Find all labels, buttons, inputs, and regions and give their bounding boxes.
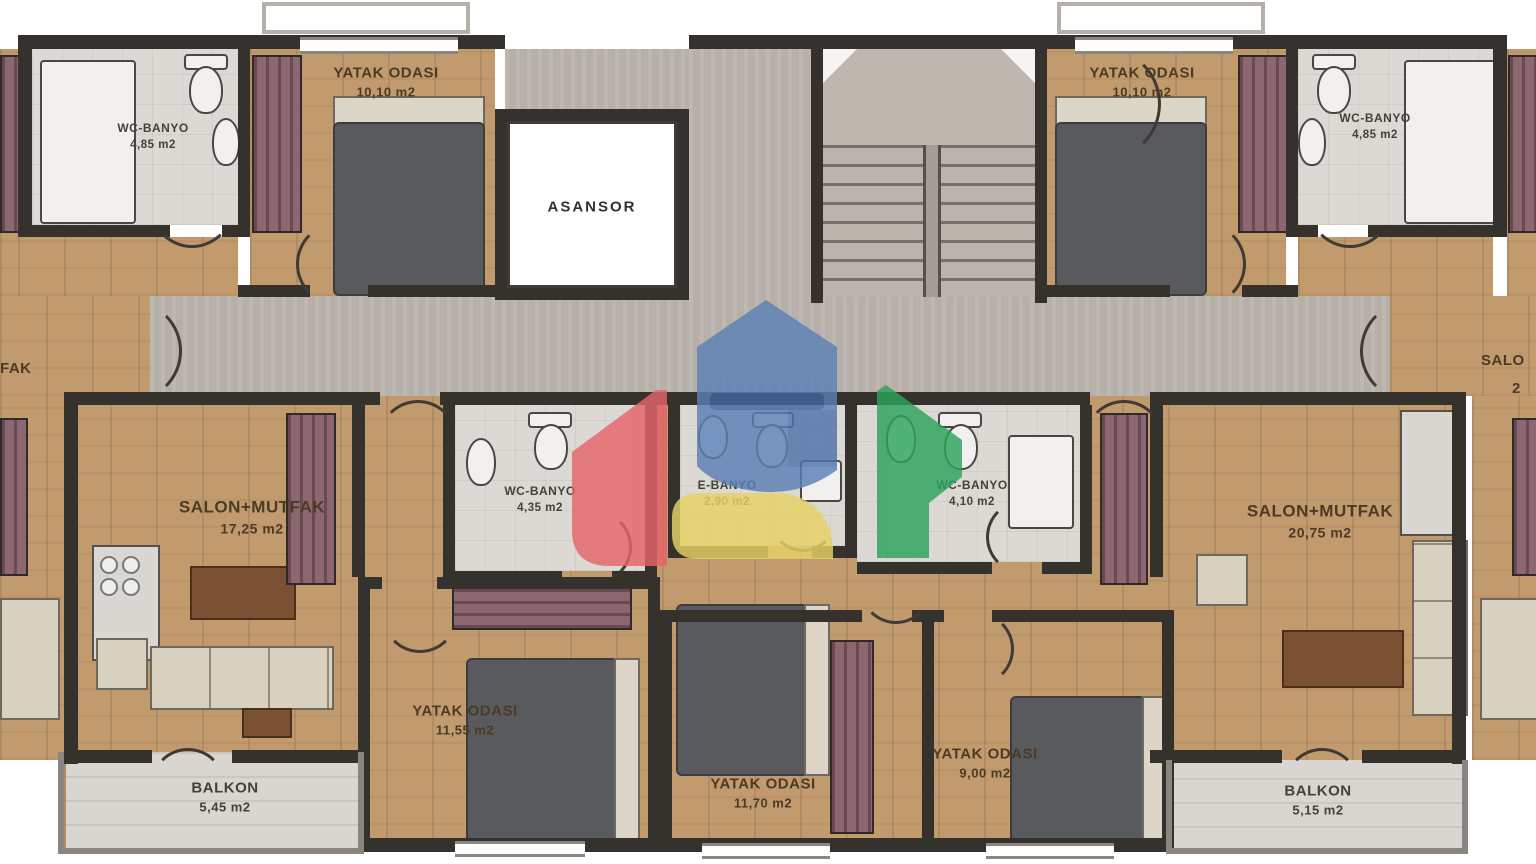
room-label-wc-banyo-top-left: WC-BANYO 4,85 m2 bbox=[117, 121, 188, 153]
wall bbox=[1035, 35, 1047, 303]
room-name: YATAK ODASI bbox=[333, 63, 438, 83]
balcony-rail bbox=[358, 752, 364, 852]
wall bbox=[238, 49, 250, 237]
wall bbox=[1042, 562, 1092, 574]
wall bbox=[1452, 392, 1466, 764]
room-label-bedroom-bottom-right: YATAK ODASI 9,00 m2 bbox=[932, 744, 1037, 781]
room-area: 20,75 m2 bbox=[1247, 523, 1393, 541]
room-label-bedroom-top-right: YATAK ODASI 10,10 m2 bbox=[1089, 63, 1194, 100]
room-label-wc-banyo-mid-right: WC-BANYO 4,10 m2 bbox=[936, 478, 1007, 510]
room-label-fragment-left: FAK bbox=[0, 360, 32, 377]
room-area: 4,10 m2 bbox=[936, 495, 1007, 510]
stairs-flight-left bbox=[823, 145, 923, 297]
room-name: ASANSOR bbox=[547, 197, 636, 217]
room-area: 10,10 m2 bbox=[333, 84, 438, 101]
armchair bbox=[1196, 554, 1248, 606]
wall bbox=[1368, 225, 1493, 237]
room-area: 5,15 m2 bbox=[1284, 802, 1351, 819]
wall bbox=[992, 610, 1174, 622]
door-arc bbox=[1162, 222, 1246, 306]
room-name: YATAK ODASI bbox=[1089, 63, 1194, 83]
floor-hall-band bbox=[150, 296, 1390, 396]
balcony-rail bbox=[58, 848, 364, 854]
toilet bbox=[756, 424, 788, 468]
room-label-bedroom-bottom-center: YATAK ODASI 11,70 m2 bbox=[710, 774, 815, 811]
room-area: 10,10 m2 bbox=[1089, 84, 1194, 101]
coffee-table bbox=[242, 708, 292, 738]
toilet bbox=[944, 424, 978, 470]
wardrobe bbox=[830, 640, 874, 834]
shower bbox=[1404, 60, 1500, 224]
stove-burner bbox=[122, 556, 140, 574]
tv-unit bbox=[190, 566, 296, 620]
window bbox=[702, 843, 830, 859]
wall bbox=[1242, 285, 1298, 297]
armchair bbox=[96, 638, 148, 690]
wall bbox=[934, 610, 944, 622]
bed-headboard bbox=[614, 658, 640, 844]
door-arc bbox=[558, 510, 632, 584]
room-name: SALO bbox=[1481, 352, 1525, 369]
sink bbox=[212, 118, 240, 166]
wall bbox=[18, 35, 32, 237]
wardrobe bbox=[1508, 55, 1536, 233]
room-name: FAK bbox=[0, 360, 32, 377]
sink bbox=[1298, 118, 1326, 166]
sink bbox=[698, 415, 728, 459]
wall bbox=[668, 405, 680, 557]
room-name: BALKON bbox=[191, 778, 258, 798]
room-name: WC-BANYO bbox=[936, 478, 1007, 494]
stove-burner bbox=[122, 578, 140, 596]
room-label-balcony-right: BALKON 5,15 m2 bbox=[1284, 781, 1351, 818]
room-label-elevator: ASANSOR bbox=[547, 197, 636, 217]
wall bbox=[845, 405, 857, 557]
room-name: BALKON bbox=[1284, 781, 1351, 801]
door-arc bbox=[296, 222, 380, 306]
wardrobe bbox=[1238, 55, 1288, 233]
door-arc bbox=[860, 552, 932, 624]
window bbox=[300, 37, 458, 54]
room-area: 2 bbox=[1512, 380, 1521, 397]
door-arc bbox=[1360, 300, 1462, 402]
wall bbox=[352, 405, 365, 577]
sofa bbox=[0, 598, 60, 720]
wall bbox=[1362, 750, 1466, 763]
balcony-rail bbox=[1166, 848, 1468, 854]
bed-headboard bbox=[804, 604, 830, 776]
room-name: YATAK ODASI bbox=[412, 701, 517, 721]
wardrobe bbox=[452, 586, 632, 630]
balcony-rail bbox=[58, 752, 64, 852]
wall bbox=[1037, 285, 1170, 297]
wall bbox=[677, 109, 689, 300]
room-area: 11,70 m2 bbox=[710, 795, 815, 812]
wall bbox=[368, 285, 497, 297]
window bbox=[455, 841, 585, 857]
wardrobe bbox=[252, 55, 302, 233]
room-area: 4,85 m2 bbox=[117, 138, 188, 153]
wall bbox=[660, 610, 672, 850]
window bbox=[986, 843, 1114, 859]
room-name: YATAK ODASI bbox=[710, 774, 815, 794]
door-arc bbox=[1084, 400, 1164, 480]
door-arc bbox=[378, 400, 458, 480]
floor-hall-below-wc-right bbox=[1298, 237, 1493, 296]
stairs-flight-right bbox=[935, 145, 1035, 297]
wall bbox=[648, 577, 660, 850]
room-name: WC-BANYO bbox=[1339, 111, 1410, 127]
room-area: 2,90 m2 bbox=[698, 495, 757, 510]
balcony-rail bbox=[1166, 760, 1172, 852]
floor-lift-lobby bbox=[505, 49, 689, 109]
wall bbox=[645, 405, 657, 583]
wall bbox=[358, 577, 382, 589]
room-name: SALON+MUTFAK bbox=[1247, 500, 1393, 522]
room-area: 11,55 m2 bbox=[412, 722, 517, 739]
door-arc bbox=[1308, 164, 1392, 248]
tv-unit bbox=[1282, 630, 1404, 688]
door-arc bbox=[382, 577, 458, 653]
door-arc bbox=[150, 164, 234, 248]
room-label-balcony-left: BALKON 5,45 m2 bbox=[191, 778, 258, 815]
room-label-living-left: SALON+MUTFAK 17,25 m2 bbox=[179, 496, 325, 537]
wardrobe bbox=[0, 418, 28, 576]
room-name: YATAK ODASI bbox=[932, 744, 1037, 764]
wall bbox=[495, 109, 689, 121]
wall bbox=[238, 285, 310, 297]
stove-burner bbox=[100, 556, 118, 574]
room-area: 4,85 m2 bbox=[1339, 128, 1410, 143]
room-label-ensuite: E-BANYO 2,90 m2 bbox=[698, 478, 757, 510]
wall bbox=[1493, 35, 1507, 237]
stairs-stringer bbox=[923, 145, 941, 297]
toilet bbox=[534, 424, 568, 470]
wall bbox=[668, 546, 768, 558]
toilet bbox=[1317, 66, 1351, 114]
room-name: WC-BANYO bbox=[117, 121, 188, 137]
roof-overhang bbox=[1057, 2, 1265, 34]
stair-chamfer-right bbox=[1001, 49, 1035, 83]
room-label-bedroom-bottom-left: YATAK ODASI 11,55 m2 bbox=[412, 701, 517, 738]
sofa bbox=[1480, 598, 1536, 720]
room-name: E-BANYO bbox=[698, 478, 757, 494]
room-area: 4,35 m2 bbox=[504, 501, 575, 516]
wall bbox=[495, 288, 689, 300]
room-area: 17,25 m2 bbox=[179, 519, 325, 537]
bed bbox=[466, 658, 618, 844]
wall bbox=[689, 35, 1047, 49]
room-label-living-right: SALON+MUTFAK 20,75 m2 bbox=[1247, 500, 1393, 541]
wall bbox=[495, 109, 507, 300]
sink bbox=[466, 438, 496, 486]
roof-overhang bbox=[262, 2, 470, 34]
wall bbox=[440, 392, 1090, 405]
wall bbox=[232, 750, 364, 763]
wall bbox=[64, 750, 152, 763]
room-label-wc-banyo-top-right: WC-BANYO 4,85 m2 bbox=[1339, 111, 1410, 143]
wall bbox=[18, 225, 170, 237]
wall bbox=[437, 577, 660, 589]
room-label-bedroom-top-left: YATAK ODASI 10,10 m2 bbox=[333, 63, 438, 100]
floor-corridor-top bbox=[689, 49, 811, 296]
room-label-fragment-right: SALO bbox=[1481, 352, 1525, 369]
toilet bbox=[189, 66, 223, 114]
door-arc bbox=[986, 500, 1060, 574]
sink bbox=[886, 415, 916, 463]
wall bbox=[811, 35, 823, 303]
wardrobe bbox=[1512, 418, 1536, 576]
room-area: 5,45 m2 bbox=[191, 799, 258, 816]
bed bbox=[676, 604, 808, 776]
room-name: SALON+MUTFAK bbox=[179, 496, 325, 518]
wall bbox=[660, 610, 862, 622]
wall bbox=[1286, 49, 1298, 237]
balcony-rail bbox=[1462, 760, 1468, 852]
floorplan: WC-BANYO 4,85 m2 YATAK ODASI 10,10 m2 AS… bbox=[0, 0, 1536, 864]
stair-chamfer-left bbox=[823, 49, 857, 83]
sofa bbox=[150, 646, 334, 710]
wall bbox=[64, 392, 78, 764]
wall bbox=[922, 610, 934, 850]
room-name: WC-BANYO bbox=[504, 484, 575, 500]
stove-burner bbox=[100, 578, 118, 596]
room-label-wc-banyo-mid-left: WC-BANYO 4,35 m2 bbox=[504, 484, 575, 516]
room-label-fragment-right-area: 2 bbox=[1512, 380, 1521, 397]
door-arc bbox=[770, 486, 836, 552]
door-arc bbox=[80, 300, 182, 402]
door-arc bbox=[940, 612, 1014, 686]
room-area: 9,00 m2 bbox=[932, 765, 1037, 782]
